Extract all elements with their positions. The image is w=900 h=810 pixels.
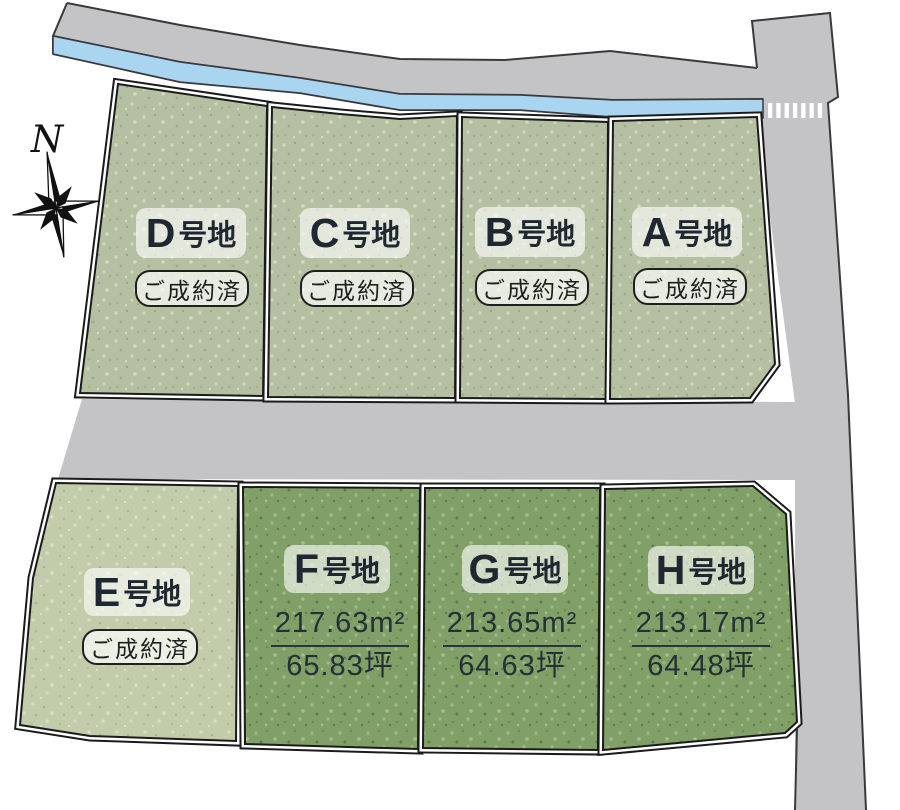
area-block-H: 213.17m² 64.48坪 <box>626 608 776 683</box>
plot-label-A: A号地 <box>632 207 742 257</box>
plot-letter: H <box>656 550 686 591</box>
plot-label-B: B号地 <box>475 207 585 257</box>
plot-label-F: F号地 <box>284 545 390 593</box>
plot-suffix: 号地 <box>123 581 181 610</box>
sold-badge-D: ご成約済 <box>135 270 249 307</box>
area-block-F: 217.63m² 65.83坪 <box>265 608 415 683</box>
plot-letter: G <box>469 549 501 590</box>
sold-badge-C: ご成約済 <box>300 270 414 307</box>
plot-label-D: D号地 <box>136 208 246 258</box>
plot-suffix: 号地 <box>342 222 400 251</box>
sold-badge-E: ご成約済 <box>82 629 198 665</box>
plot-shape-A <box>610 117 775 399</box>
plot-suffix: 号地 <box>503 558 561 587</box>
sold-badge-text: ご成約済 <box>482 271 582 305</box>
plot-label-E: E号地 <box>84 568 190 616</box>
area-m2: 213.17m² <box>626 608 776 640</box>
plot-letter: F <box>294 549 319 590</box>
area-m2: 217.63m² <box>265 608 415 640</box>
plot-suffix: 号地 <box>674 221 732 250</box>
sold-badge-text: ご成約済 <box>142 272 242 306</box>
area-divider <box>271 645 409 647</box>
plot-suffix: 号地 <box>688 559 746 588</box>
middle-road <box>58 399 805 480</box>
area-m2: 213.65m² <box>437 608 587 640</box>
plot-label-G: G号地 <box>462 545 568 593</box>
compass-rose-icon <box>4 145 108 264</box>
sold-badge-text: ご成約済 <box>90 630 190 664</box>
sold-badge-B: ご成約済 <box>475 269 589 306</box>
plot-letter: C <box>310 213 340 254</box>
plot-shape-B <box>460 117 608 399</box>
plot-suffix: 号地 <box>178 222 236 251</box>
plot-letter: E <box>93 572 120 613</box>
plot-suffix: 号地 <box>322 558 380 587</box>
sold-badge-A: ご成約済 <box>633 268 747 305</box>
plot-letter: B <box>485 212 515 253</box>
lot-map-canvas: N <box>0 0 900 810</box>
plot-label-H: H号地 <box>648 546 754 594</box>
area-divider <box>632 645 770 647</box>
area-divider <box>443 645 581 647</box>
area-block-G: 213.65m² 64.63坪 <box>437 608 587 683</box>
plot-letter: A <box>642 212 672 253</box>
area-tsubo: 64.48坪 <box>626 651 776 683</box>
plot-suffix: 号地 <box>517 221 575 250</box>
compass: N <box>4 118 108 264</box>
sold-badge-text: ご成約済 <box>640 270 740 304</box>
plot-letter: D <box>146 213 176 254</box>
area-tsubo: 64.63坪 <box>437 651 587 683</box>
area-tsubo: 65.83坪 <box>265 651 415 683</box>
lot-map: N D号地 C号地 B号地 A号地 E <box>0 0 900 810</box>
plot-label-C: C号地 <box>300 208 410 258</box>
sold-badge-text: ご成約済 <box>307 272 407 306</box>
